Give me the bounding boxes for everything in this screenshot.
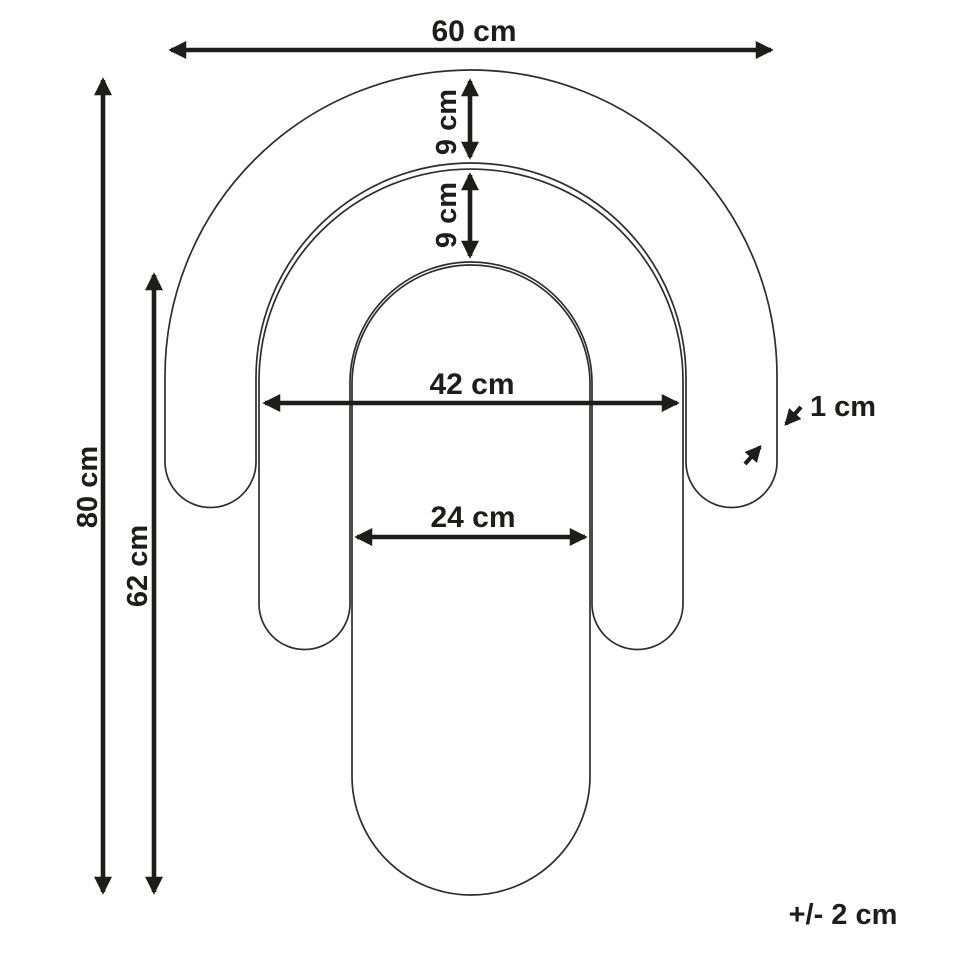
pill-width-label: 24 cm xyxy=(430,501,515,534)
middle-band-label: 9 cm xyxy=(431,182,463,248)
dimension-diagram: 60 cm 9 cm 9 cm 80 cm 62 cm 42 cm 24 cm … xyxy=(0,0,960,960)
middle-width-label: 42 cm xyxy=(429,368,514,401)
thickness-pointer-upper xyxy=(786,407,801,424)
diagram-svg: 60 cm 9 cm 9 cm 80 cm 62 cm 42 cm 24 cm … xyxy=(0,0,960,960)
pill-height-label: 62 cm xyxy=(122,525,154,607)
thickness-label: 1 cm xyxy=(810,391,876,423)
tolerance-label: +/- 2 cm xyxy=(789,899,898,931)
outer-band-label: 9 cm xyxy=(431,89,463,155)
outer-width-label: 60 cm xyxy=(431,15,516,48)
inner-pill-shape xyxy=(352,265,590,895)
overall-height-label: 80 cm xyxy=(72,446,104,528)
